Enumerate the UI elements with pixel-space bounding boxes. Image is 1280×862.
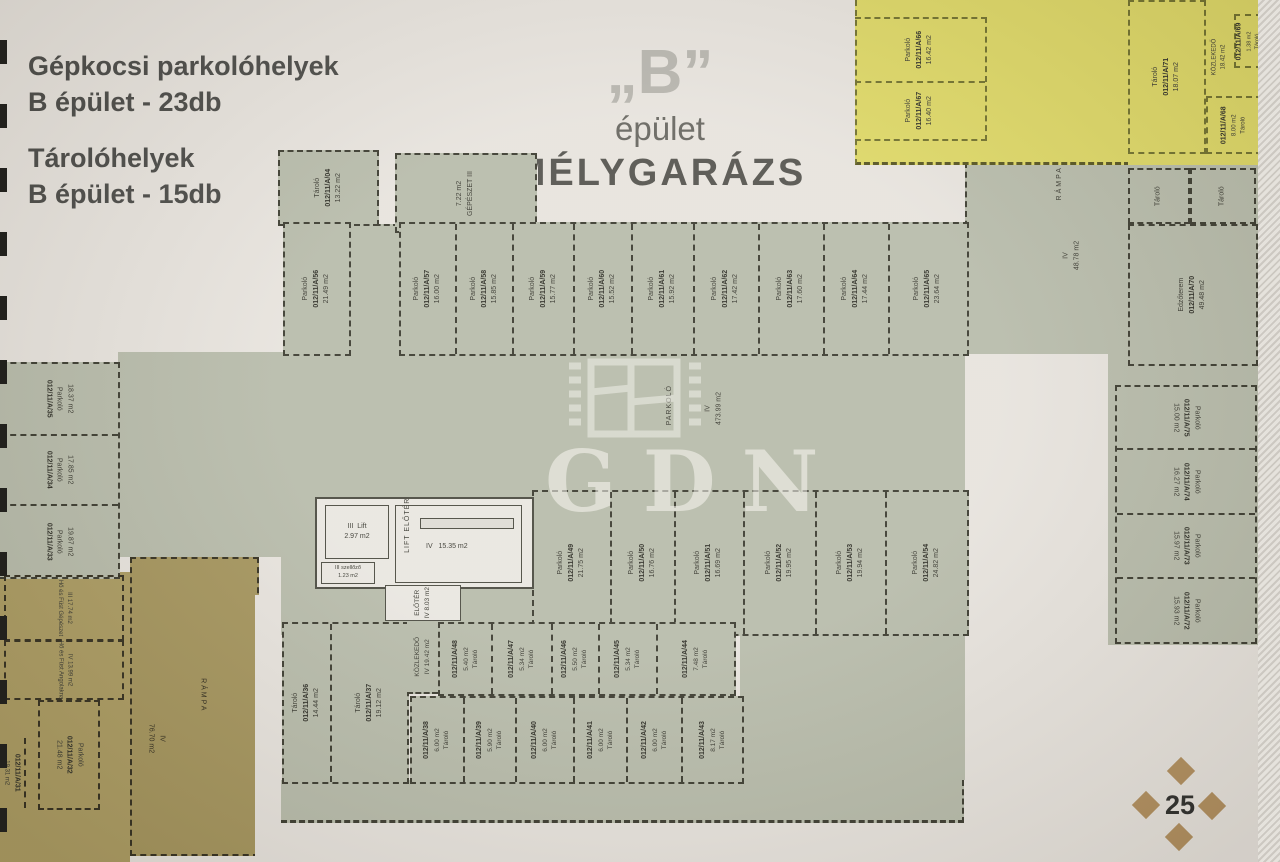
stall-type: Parkoló — [469, 277, 480, 301]
storage-unit: 012/11/A/40 6.00 m2 Tároló — [515, 698, 573, 782]
stall-area: 15.85 m2 — [490, 274, 501, 303]
diamond-bottom — [1165, 823, 1193, 851]
unit-area: 6.00 m2 — [650, 728, 660, 752]
szellozo-name: III szellőző — [335, 565, 361, 573]
unit-id: 012/11/A/43 — [698, 721, 709, 759]
stall-type: Parkoló — [54, 458, 65, 482]
unit-id: 012/11/A/45 — [613, 640, 624, 678]
stall-id: 012/11/A/59 — [538, 270, 549, 308]
room-name: KÖZLEKEDŐ — [1210, 39, 1219, 76]
parking-stall: Parkoló 012/11/A/54 24.82 m2 — [885, 492, 967, 634]
unit-id: 012/11/A/42 — [640, 721, 651, 759]
unit-id: 012/11/A/41 — [585, 721, 596, 759]
lift-eloter-area: IV 15.35 m2 — [426, 542, 468, 552]
stall-id: 012/11/A/33 — [43, 523, 54, 561]
ho-akna-room: IV 13.99 m2 Hő és Füst Angolakna — [4, 640, 124, 700]
stall-id: 012/11/A/65 — [923, 270, 934, 308]
stall-type: Parkoló — [1191, 405, 1202, 429]
stall-type: Parkoló — [775, 277, 786, 301]
ramp-right-area: IV 48.78 m2 — [1062, 234, 1083, 278]
stall-type: Parkoló — [587, 277, 598, 301]
parking-stall: Parkoló 012/11/A/64 17.44 m2 — [823, 224, 888, 354]
lift-room: III Lift 2.97 m2 — [325, 505, 389, 559]
stall-id: 012/11/A/60 — [597, 270, 608, 308]
room-name-line: GÉPÉSZET III — [466, 170, 477, 215]
legend-storage-title: Tárolóhelyek — [28, 140, 222, 176]
stall-area: 15.52 m2 — [608, 274, 619, 303]
unit-type: Tároló — [718, 731, 728, 749]
parking-stall: Parkoló 012/11/A/73 15.97 m2 — [1117, 513, 1255, 577]
stall-area: 24.82 m2 — [932, 548, 943, 577]
room-area: 18.07 m2 — [1172, 62, 1183, 91]
stall-type: Parkoló — [911, 551, 922, 575]
legend-parking-title: Gépkocsi parkolóhelyek — [28, 48, 339, 84]
unit-type: Tároló — [633, 650, 643, 668]
stall-area: 16.27 m2 — [1170, 467, 1181, 496]
top-parking-row: Parkoló 012/11/A/57 16.00 m2 Parkoló 012… — [399, 222, 969, 356]
stall-id: 012/11/A/52 — [774, 544, 785, 582]
room-type: Tároló — [313, 178, 324, 198]
stall-area: 15.77 m2 — [549, 274, 560, 303]
storage-unit: 012/11/A/39 5.90 m2 Tároló — [463, 698, 516, 782]
parking-stall: Parkoló 012/11/A/62 17.42 m2 — [693, 224, 758, 354]
title-melygarazs: MÉLYGARÁZS — [500, 152, 820, 195]
parking-stall: Parkoló 012/11/A/65 23.64 m2 — [888, 224, 967, 354]
parking-stall: 18.37 m2 Parkoló 012/11/A/35 — [0, 364, 118, 434]
stall-type: Parkoló — [54, 530, 65, 554]
gold-zone-ramp — [130, 557, 259, 856]
yellow-kozlekedo: KÖZLEKEDŐ 18.42 m2 — [1204, 14, 1234, 100]
stall-id: 012/11/A/53 — [846, 544, 857, 582]
unit-type: Tároló — [606, 731, 616, 749]
stall-type: Parkoló — [912, 277, 923, 301]
floorplan-page: Gépkocsi parkolóhelyek B épület - 23db T… — [0, 0, 1280, 862]
room-area: 1.38 m2 — [1245, 31, 1253, 51]
unit-area: 14.44 m2 — [312, 688, 323, 717]
storage-unit: 012/11/A/47 5.34 m2 Tároló — [491, 624, 551, 694]
watermark-logo-icon — [565, 358, 725, 438]
unit-id: 012/11/A/39 — [475, 721, 486, 759]
stall-type: Parkoló — [710, 277, 721, 301]
aisle-bottom — [281, 780, 964, 823]
storage-unit: 012/11/A/44 7.48 m2 Tároló — [656, 624, 734, 694]
storage-unit: Tároló 012/11/A/37 19.12 m2 — [330, 624, 407, 782]
stall-id: 012/11/A/61 — [657, 270, 668, 308]
parking-stall: 19.87 m2 Parkoló 012/11/A/33 — [0, 504, 118, 577]
unit-area: 5.34 m2 — [623, 647, 633, 671]
photo-background-edge — [1258, 0, 1280, 862]
room-name: Hő és Füst Angolakna — [55, 641, 64, 700]
stall-area: 23.64 m2 — [933, 274, 944, 303]
tarolo-topleft-room: Tároló 012/11/A/04 13.22 m2 — [278, 150, 379, 226]
storage-unit: 012/11/A/45 5.34 m2 Tároló — [598, 624, 656, 694]
stall-area: 15.92 m2 — [668, 274, 679, 303]
legend-parking-count: B épület - 23db — [28, 84, 339, 120]
stall-area: 19.87 m2 — [64, 527, 75, 556]
stall-id: 012/11/A/32 — [64, 736, 75, 774]
unit-area: 5.40 m2 — [461, 647, 471, 671]
unit-area: 19.12 m2 — [375, 688, 386, 717]
stall-id: 012/11/A/67 — [915, 92, 926, 130]
stall-area: 17.44 m2 — [861, 274, 872, 303]
title-building-letter: „B” — [500, 42, 820, 104]
page-number: 25 — [1165, 790, 1195, 821]
unit-type: Tároló — [495, 731, 505, 749]
stall-type: Parkoló — [764, 551, 775, 575]
diamond-right — [1198, 792, 1226, 820]
stall-id: 012/11/A/56 — [312, 270, 323, 308]
stall-area: 15.93 m2 — [1170, 596, 1181, 625]
ramp-right-corridor — [965, 162, 1130, 354]
storage-unit: 012/11/A/48 5.40 m2 Tároló — [440, 624, 491, 694]
stall-id: 012/11/A/62 — [721, 270, 732, 308]
unit-id: 012/11/A/47 — [507, 640, 518, 678]
storage-tall-units: Tároló 012/11/A/36 14.44 m2 Tároló 012/1… — [282, 622, 409, 784]
stall-area: 16.69 m2 — [714, 548, 725, 577]
stall-type: Parkoló — [693, 551, 704, 575]
room-area: 13.22 m2 — [334, 173, 345, 202]
ramp-right-floor: IV — [1062, 252, 1073, 259]
stall-type: Parkoló — [1191, 598, 1202, 622]
unit-id: 012/11/A/38 — [422, 721, 433, 759]
unit-type: Tároló — [581, 650, 591, 668]
unit-area: 5.90 m2 — [486, 728, 496, 752]
stall-area: 17.85 m2 — [64, 455, 75, 484]
lift-eloter-room: LIFT ELŐTÉR IV 15.35 m2 — [395, 505, 522, 583]
ramp-left-area: IV 76.70 m2 — [146, 719, 167, 759]
stall-id: 012/11/A/63 — [786, 270, 797, 308]
parking-stall: Parkoló 012/11/A/75 15.00 m2 — [1117, 387, 1255, 448]
room-id: 012/11/A/69 — [1235, 22, 1246, 60]
lift-floor-name: III Lift — [344, 522, 369, 532]
parking-stall: Parkoló 012/11/A/59 15.77 m2 — [512, 224, 572, 354]
unit-area: 5.34 m2 — [517, 647, 527, 671]
room-name: Hő és Füst Gépészet — [55, 580, 64, 636]
tarolo-right-1: Tároló — [1128, 168, 1190, 224]
room-type: Tároló — [1154, 186, 1165, 206]
yellow-stall-row: Parkoló 012/11/A/66 16.42 m2 Parkoló 012… — [855, 17, 987, 141]
parking-stall: 17.85 m2 Parkoló 012/11/A/34 — [0, 434, 118, 505]
parking-stall: Parkoló 012/11/A/72 15.93 m2 — [1117, 577, 1255, 642]
unit-type: Tároló — [701, 650, 711, 668]
stall-type: Parkoló — [840, 277, 851, 301]
stall-type: Parkoló — [528, 277, 539, 301]
stall-area: 15.97 m2 — [1170, 531, 1181, 560]
stall-id: 012/11/A/75 — [1181, 398, 1192, 436]
stall-type: Parkoló — [1191, 534, 1202, 558]
unit-area: 5.50 m2 — [571, 647, 581, 671]
stall-id: 012/11/A/34 — [43, 451, 54, 489]
ho-gepeszet-room: III 17.74 m2 Hő és Füst Gépészet — [4, 575, 124, 641]
stall-id: 012/11/A/57 — [423, 270, 434, 308]
unit-type: Tároló — [443, 731, 453, 749]
stall-id: 012/11/A/74 — [1181, 462, 1192, 500]
room-area: 8.00 m2 — [1230, 114, 1239, 136]
stall-id: 012/11/A/49 — [567, 544, 578, 582]
room-area: 7.22 m2 — [455, 180, 466, 205]
page-title: „B” épület MÉLYGARÁZS — [500, 42, 820, 195]
storage-unit: 012/11/A/42 6.00 m2 Tároló — [626, 698, 682, 782]
unit-type: Tároló — [527, 650, 537, 668]
room-id: 012/11/A/70 — [1188, 276, 1199, 314]
stall-area: 16.00 m2 — [433, 274, 444, 303]
storage-row-2: 012/11/A/38 6.00 m2 Tároló 012/11/A/39 5… — [410, 696, 744, 784]
stall-area: 16.40 m2 — [925, 96, 936, 125]
left-parking-column: 18.37 m2 Parkoló 012/11/A/35 17.85 m2 Pa… — [0, 362, 120, 579]
right-parking-column: Parkoló 012/11/A/75 15.00 m2 Parkoló 012… — [1115, 385, 1257, 644]
ramp-left-floor: IV — [156, 735, 167, 742]
stall-id: 012/11/A/35 — [43, 380, 54, 418]
stall-type: Parkoló — [627, 551, 638, 575]
stall-area: 17.60 m2 — [796, 274, 807, 303]
plan-field-center-left — [118, 352, 281, 557]
parking-stall: Parkoló 012/11/A/66 16.42 m2 — [855, 19, 985, 81]
room-id: 012/11/A/04 — [323, 169, 334, 207]
room-type: Tároló — [1239, 116, 1248, 133]
stall-id: 012/11/A/73 — [1181, 527, 1192, 565]
room-floor-area: IV 13.99 m2 — [64, 654, 73, 686]
storage-kozlekedo: KÖZLEKEDŐ IV 19.42 m2 — [407, 622, 438, 694]
storage-unit: 012/11/A/46 5.50 m2 Tároló — [551, 624, 598, 694]
unit-type: Tároló — [660, 731, 670, 749]
edzoterem-room: Edzőterem 012/11/A/70 49.48 m2 — [1128, 224, 1258, 366]
spiral-binding-edge — [0, 0, 7, 862]
eloter-room: ELŐTÉR IV 8.03 m2 — [385, 585, 461, 621]
parking-stall: Parkoló 012/11/A/60 15.52 m2 — [573, 224, 631, 354]
legend-storage-count: B épület - 15db — [28, 176, 222, 212]
kozlekedo-name: KÖZLEKEDŐ — [413, 637, 423, 677]
tarolo-right-2: Tároló — [1190, 168, 1256, 224]
lift-area: 2.97 m2 — [344, 532, 369, 542]
stair-bar — [420, 518, 514, 529]
unit-id: 012/11/A/46 — [560, 640, 571, 678]
stall-area: 18.37 m2 — [64, 384, 75, 413]
storage-unit: 012/11/A/38 6.00 m2 Tároló — [412, 698, 463, 782]
szellozo-area: 1.23 m2 — [335, 573, 361, 581]
room-area: 49.48 m2 — [1198, 280, 1209, 309]
diamond-left — [1132, 791, 1160, 819]
unit-id: 012/11/A/37 — [364, 684, 375, 722]
storage-unit: 012/11/A/43 8.17 m2 Tároló — [681, 698, 742, 782]
stall-id: 012/11/A/58 — [480, 270, 491, 308]
room-floor-area: III 17.74 m2 — [64, 592, 73, 624]
stall-type: Parkoló — [74, 743, 85, 767]
unit-area: 8.17 m2 — [708, 728, 718, 752]
plan-field-gap-top — [347, 224, 399, 356]
unit-id: 012/11/A/48 — [450, 640, 461, 678]
ramp-left-m2: 76.70 m2 — [146, 724, 157, 753]
room-type: Tároló — [1218, 186, 1229, 206]
stall-area: 16.76 m2 — [648, 548, 659, 577]
unit-id: 012/11/A/44 — [681, 640, 692, 678]
yellow-tarolo-big: Tároló 012/11/A/71 18.07 m2 — [1128, 0, 1206, 154]
parking-stall: Parkoló 012/11/A/57 16.00 m2 — [401, 224, 455, 354]
stall-type: Parkoló — [1191, 469, 1202, 493]
unit-type: Tároló — [354, 693, 365, 713]
kozlekedo-area: IV 19.42 m2 — [423, 639, 433, 674]
stall-area: 19.95 m2 — [785, 548, 796, 577]
title-epulet: épület — [500, 110, 820, 148]
storage-unit: Tároló 012/11/A/36 14.44 m2 — [284, 624, 330, 782]
stall-area: 16.42 m2 — [925, 35, 936, 64]
yellow-tarolo-8: 012/11/A/68 8.00 m2 Tároló — [1206, 96, 1262, 154]
stall-type: Parkoló — [904, 99, 915, 123]
unit-type: Tároló — [291, 693, 302, 713]
eloter-area: IV 8.03 m2 — [423, 587, 433, 618]
stall-id: 012/11/A/31 — [11, 754, 22, 792]
stall-id: 012/11/A/72 — [1181, 591, 1192, 629]
stall-area: 19.94 m2 — [856, 548, 867, 577]
stall-id: 012/11/A/64 — [851, 270, 862, 308]
lift-eloter-name: LIFT ELŐTÉR — [403, 505, 414, 545]
stall-id: 012/11/A/66 — [915, 31, 926, 69]
parking-stall: Parkoló 012/11/A/67 16.40 m2 — [855, 81, 985, 139]
stall-type: Parkoló — [301, 277, 312, 301]
ramp-left-label: RÁMPA — [197, 675, 208, 715]
unit-id: 012/11/A/36 — [302, 684, 313, 722]
ramp-right-label: RÁMPA — [1055, 163, 1066, 203]
stall-type: Parkoló — [835, 551, 846, 575]
eloter-name: ELŐTÉR — [413, 590, 423, 616]
gold-parking-stall: Parkoló 012/11/A/32 21.48 m2 — [38, 700, 100, 810]
stall-id: 012/11/A/51 — [704, 544, 715, 582]
gepeszet-room: 7.22 m2 GÉPÉSZET III — [395, 153, 537, 233]
stall-type: Parkoló — [54, 387, 65, 411]
storage-row-1: 012/11/A/48 5.40 m2 Tároló 012/11/A/47 5… — [438, 622, 736, 696]
stall-area: 21.49 m2 — [322, 274, 333, 303]
room-area: 18.42 m2 — [1219, 44, 1228, 69]
room-id: 012/11/A/71 — [1162, 58, 1173, 96]
unit-area: 7.48 m2 — [691, 647, 701, 671]
unit-type: Tároló — [471, 650, 481, 668]
room-type: Tároló — [1151, 67, 1162, 87]
unit-id: 012/11/A/40 — [530, 721, 541, 759]
stall-id: 012/11/A/50 — [637, 544, 648, 582]
parking-stall-first: Parkoló 012/11/A/56 21.49 m2 — [283, 222, 351, 356]
expansion-gap — [255, 595, 281, 862]
stall-area: 17.42 m2 — [731, 274, 742, 303]
unit-area: 6.00 m2 — [541, 728, 551, 752]
stall-type: Parkoló — [556, 551, 567, 575]
unit-area: 6.00 m2 — [596, 728, 606, 752]
legend-storage: Tárolóhelyek B épület - 15db — [28, 140, 222, 213]
parking-stall: Parkoló 012/11/A/74 16.27 m2 — [1117, 448, 1255, 513]
storage-unit: 012/11/A/41 6.00 m2 Tároló — [573, 698, 626, 782]
stall-id: 012/11/A/54 — [922, 544, 933, 582]
room-name: Edzőterem — [1177, 278, 1188, 312]
unit-type: Tároló — [551, 731, 561, 749]
parking-stall: Parkoló 012/11/A/63 17.60 m2 — [758, 224, 823, 354]
room-id: 012/11/A/68 — [1220, 106, 1231, 144]
stall-area: 15.00 m2 — [1170, 403, 1181, 432]
stall-type: Parkoló — [904, 38, 915, 62]
stall-area: 21.48 m2 — [53, 740, 64, 769]
diamond-top — [1167, 757, 1195, 785]
plan-field-lower — [740, 632, 965, 780]
stall-type: Parkoló — [647, 277, 658, 301]
stall-type: Parkoló — [412, 277, 423, 301]
ramp-right-m2: 48.78 m2 — [1072, 241, 1083, 270]
parking-stall: Parkoló 012/11/A/61 15.92 m2 — [631, 224, 693, 354]
szellozo-room: III szellőző 1.23 m2 — [321, 562, 375, 584]
stall-area: 21.75 m2 — [577, 548, 588, 577]
watermark-text: GDN — [545, 432, 844, 531]
parking-stall: Parkoló 012/11/A/58 15.85 m2 — [455, 224, 512, 354]
legend-parking: Gépkocsi parkolóhelyek B épület - 23db — [28, 48, 339, 121]
